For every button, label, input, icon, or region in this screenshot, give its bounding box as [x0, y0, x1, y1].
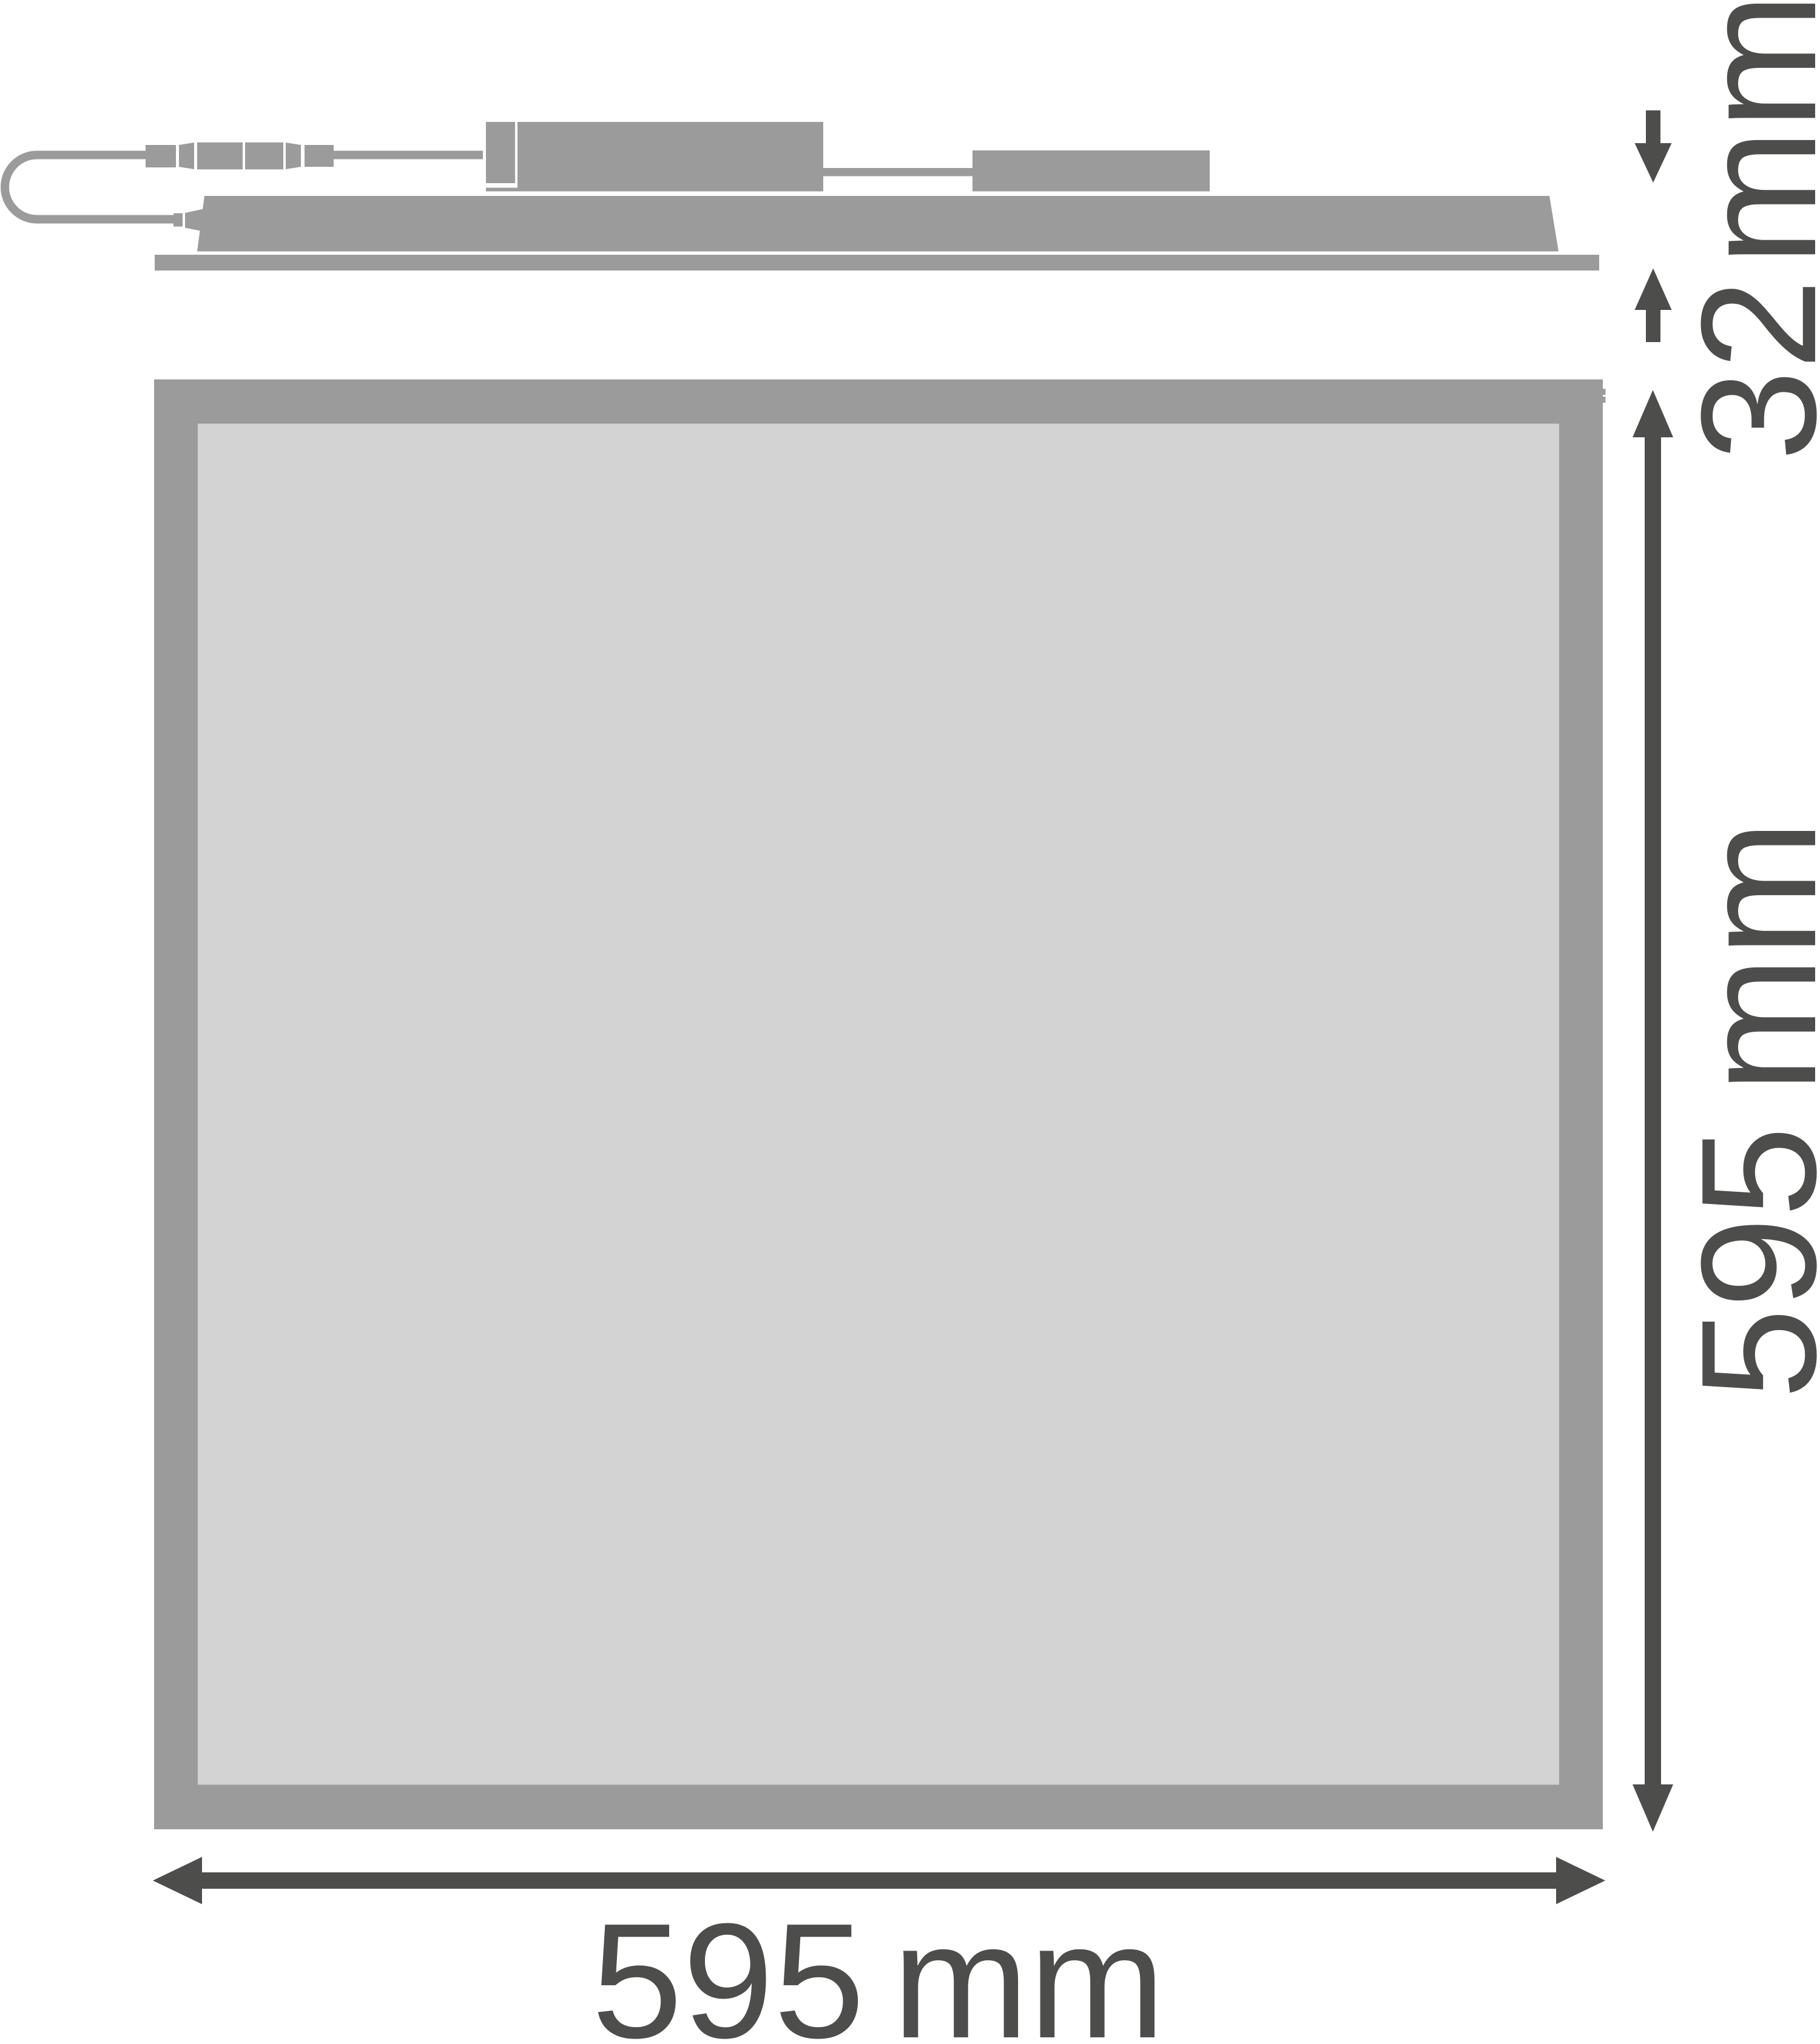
svg-text:mm: mm — [1668, 0, 1820, 266]
svg-text:mm: mm — [892, 1890, 1165, 2044]
svg-text:mm: mm — [1668, 820, 1820, 1093]
svg-text:32: 32 — [1668, 279, 1820, 461]
svg-text:595: 595 — [1668, 1126, 1820, 1399]
svg-text:595: 595 — [591, 1890, 864, 2044]
